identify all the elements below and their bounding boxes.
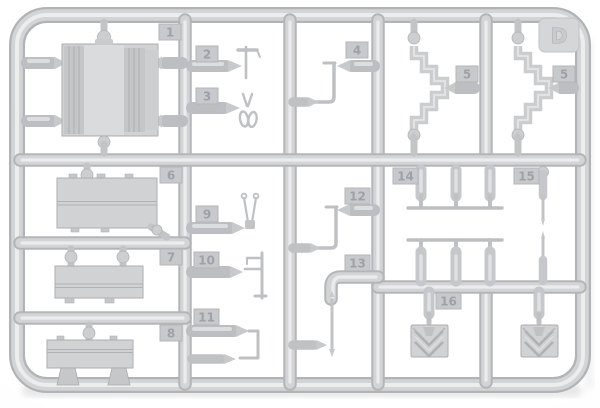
part-tag-12-label: 12 [349,190,366,204]
part-tag-1-label: 1 [166,26,174,40]
part-tag-13: 13 [345,255,370,271]
part-14-rod-set-upper [408,170,502,208]
part-tag-7-label: 7 [167,251,175,265]
part-4-crank-handle [293,60,374,107]
sprue-photo: 1 2 3 4 5 5 6 7 8 9 10 11 12 13 14 15 16… [0,0,600,408]
part-tag-12: 12 [345,188,370,204]
part-tag-2: 2 [196,46,218,62]
part-tag-13-label: 13 [349,257,366,271]
part-15-rod-lower [541,231,545,281]
part-tag-16: 16 [436,293,461,309]
part-tag-7: 7 [160,249,182,265]
part-14-rod-set-lower [408,240,502,281]
part-tag-2-label: 2 [203,48,211,62]
part-12-crank-handle [293,204,374,253]
part-tag-9: 9 [196,206,218,222]
part-tag-5-left: 5 [456,66,478,82]
part-16-chevron-plate-right [521,292,558,357]
part-11-l-bar [192,325,258,364]
part-tag-5-left-label: 5 [463,68,471,82]
part-tag-15-label: 15 [518,170,535,184]
part-tag-8: 8 [160,325,182,341]
part-1-block [27,22,182,153]
part-tag-14-label: 14 [397,170,414,184]
part-tag-6-label: 6 [167,169,175,183]
part-tag-10-label: 10 [198,254,215,268]
sprue-canvas: 1 2 3 4 5 5 6 7 8 9 10 11 12 13 14 15 16… [0,0,600,408]
part-tag-1: 1 [159,24,181,40]
sprue-letter-label: D [551,24,568,48]
part-7-panel [55,249,143,303]
part-tag-3-label: 3 [203,90,211,104]
part-tag-8-label: 8 [167,327,175,341]
part-tag-9-label: 9 [203,208,211,222]
part-tag-6: 6 [160,167,182,183]
sprue-letter-tab: D [539,18,579,52]
part-6-panel [57,166,167,237]
part-tag-14: 14 [393,168,418,184]
part-tag-4: 4 [346,42,368,58]
part-5-step-bracket-left [408,22,474,153]
part-tag-3: 3 [196,88,218,104]
part-13-rod [293,277,378,357]
part-tag-10: 10 [194,252,219,268]
part-tag-5-right-label: 5 [560,68,568,82]
part-8-panel [47,325,133,385]
part-tag-5-right: 5 [553,66,575,82]
part-tag-16-label: 16 [440,295,457,309]
part-tag-4-label: 4 [353,44,361,58]
part-tag-15: 15 [514,168,539,184]
part-tag-11-label: 11 [198,311,215,325]
part-tag-11: 11 [194,309,219,325]
